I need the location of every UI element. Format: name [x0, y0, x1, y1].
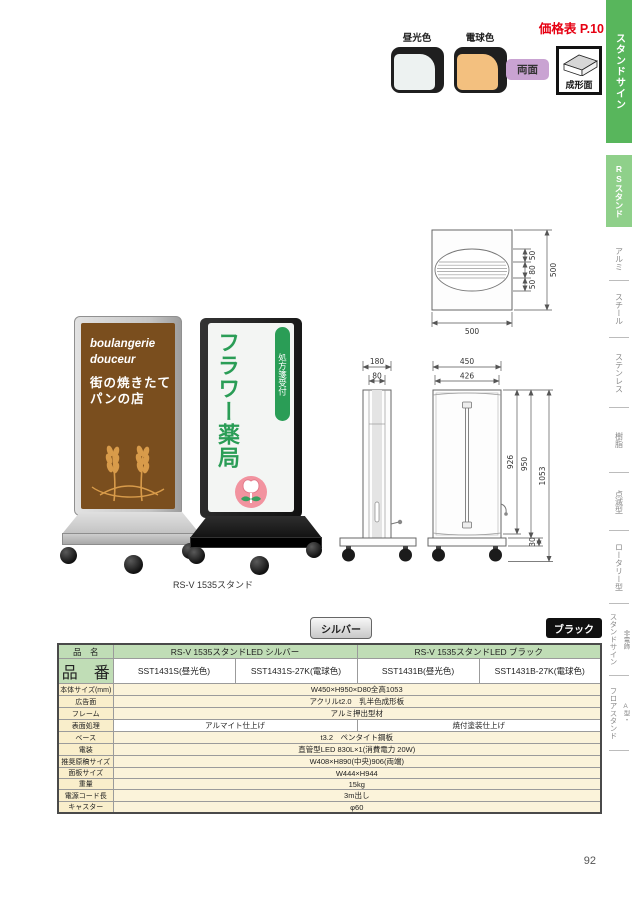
swatch-bulb-panel: [457, 54, 498, 90]
product-code: SST1431S-27K(電球色): [235, 659, 357, 684]
bakery-line1: boulangerie: [90, 338, 155, 350]
dim-30: 30: [528, 537, 537, 547]
table-row: 重量15kg: [58, 779, 601, 790]
bakery-line4: パンの店: [90, 392, 145, 406]
spec-row-label: 品 番: [58, 659, 113, 684]
table-row: キャスターφ60: [58, 802, 601, 814]
table-row: 電源コード長3m出し: [58, 790, 601, 802]
dim-500-width: 500: [465, 327, 480, 336]
caster-wheel: [124, 555, 143, 574]
molded-face-badge: 成形面: [556, 46, 602, 95]
product-name-black: RS-V 1535スタンドLED ブラック: [357, 644, 601, 659]
black-stand-base-front: [190, 537, 322, 548]
black-stand-frame: フラワー薬局 処方箋受付: [200, 318, 302, 518]
spec-table: 品 名RS-V 1535スタンドLED シルバーRS-V 1535スタンドLED…: [57, 643, 602, 814]
bakery-line2: douceur: [90, 354, 135, 366]
sidebar-item-rotary-label: ロータリー型: [614, 543, 625, 591]
sidebar-tab-stand-sign[interactable]: スタンドサイン: [606, 0, 632, 143]
caster-wheel: [188, 547, 205, 564]
caster-wheel: [306, 542, 322, 558]
dim-450: 450: [460, 357, 475, 366]
spec-row-label: 推奨原稿サイズ: [58, 756, 113, 768]
table-row-code: 品 番SST1431S(昼光色)SST1431S-27K(電球色)SST1431…: [58, 659, 601, 684]
sidebar-separator: [609, 750, 629, 751]
sidebar-tab-rs-stand-label: RSスタンド: [613, 164, 625, 218]
swatch-bulb: 電球色: [452, 30, 508, 93]
dim-500-height: 500: [549, 263, 558, 278]
product-code: SST1431S(昼光色): [113, 659, 235, 684]
dim-80-side: 80: [372, 372, 382, 381]
double-side-badge: 両面: [506, 59, 549, 80]
swatch-daylight-panel: [394, 54, 435, 90]
tulip-logo-icon: [233, 474, 269, 510]
spec-value: 直管型LED 830L×1(消費電力 20W): [113, 744, 601, 756]
table-row: 推奨原稿サイズW408×H890(中央)906(両端): [58, 756, 601, 768]
wheat-illustration-icon: [86, 443, 170, 505]
sidebar-item-non-illuminated-stand-sign[interactable]: スタンドサイン 非電飾: [606, 604, 632, 675]
spec-row-label: 品 名: [58, 644, 113, 659]
spec-row-label: フレーム: [58, 708, 113, 720]
drawing-elevations: 180 80 450 426: [333, 356, 573, 571]
table-row: 面板サイズW444×H944: [58, 768, 601, 779]
spec-value: アクリルt2.0 乳半色成形板: [113, 696, 601, 708]
caster-wheel: [250, 556, 269, 575]
spec-row-label: 本体サイズ(mm): [58, 684, 113, 696]
black-color-badge: ブラック: [546, 618, 602, 638]
spec-value: 15kg: [113, 779, 601, 790]
table-row: フレームアルミ押出型材: [58, 708, 601, 720]
page-number: 92: [566, 855, 596, 867]
sidebar-tab-rs-stand[interactable]: RSスタンド: [606, 155, 632, 227]
sidebar-item-stainless[interactable]: ステンレス: [606, 338, 632, 407]
spec-row-label: キャスター: [58, 802, 113, 814]
product-code: SST1431B-27K(電球色): [479, 659, 601, 684]
dim-80: 80: [528, 265, 537, 275]
swatch-bulb-image: [454, 47, 507, 93]
table-row: 表面処理アルマイト仕上げ焼付塗装仕上げ: [58, 720, 601, 732]
silver-stand-base-front: [62, 533, 200, 545]
black-stand-base: [190, 516, 322, 538]
spec-value: φ60: [113, 802, 601, 814]
spec-value: W450×H950×D80全高1053: [113, 684, 601, 696]
spec-row-label: 電源コード長: [58, 790, 113, 802]
spec-row-label: 電装: [58, 744, 113, 756]
sidebar-item-stainless-label: ステンレス: [614, 353, 625, 393]
spec-value: W408×H890(中央)906(両端): [113, 756, 601, 768]
sidebar-item-resin-label: 樹脂: [614, 432, 625, 448]
dim-180: 180: [370, 357, 385, 366]
silver-color-badge: シルバー: [310, 617, 372, 639]
table-row: 電装直管型LED 830L×1(消費電力 20W): [58, 744, 601, 756]
spec-row-label: 広告面: [58, 696, 113, 708]
sidebar-item-blinking-label: 点滅型: [614, 490, 625, 514]
spec-value: アルマイト仕上げ: [113, 720, 357, 732]
table-row: ベースt3.2 ペンタイト鋼板: [58, 732, 601, 744]
spec-value: アルミ押出型材: [113, 708, 601, 720]
pharmacy-ribbon-text: 処方箋受付: [277, 353, 289, 396]
sidebar-item-steel-label: スチール: [614, 293, 625, 325]
sidebar-item-non-illuminated-prefix: 非電飾: [620, 630, 630, 650]
sidebar-item-non-illuminated-label: スタンドサイン: [608, 613, 619, 666]
pharmacy-ribbon: 処方箋受付: [275, 327, 290, 421]
swatch-daylight: 昼光色: [389, 30, 445, 93]
spec-row-label: ベース: [58, 732, 113, 744]
sidebar-item-resin[interactable]: 樹脂: [606, 408, 632, 472]
product-name-silver: RS-V 1535スタンドLED シルバー: [113, 644, 357, 659]
spec-row-label: 表面処理: [58, 720, 113, 732]
swatch-daylight-label: 昼光色: [389, 30, 445, 44]
dim-950: 950: [520, 457, 529, 472]
caster-wheel: [60, 547, 77, 564]
sidebar-item-rotary[interactable]: ロータリー型: [606, 531, 632, 603]
table-row: 本体サイズ(mm)W450×H950×D80全高1053: [58, 684, 601, 696]
swatch-bulb-label: 電球色: [452, 30, 508, 44]
dim-50-bottom: 50: [528, 280, 537, 290]
sidebar-item-a-type-prefix: A型・: [620, 703, 630, 723]
spec-row-label: 面板サイズ: [58, 768, 113, 779]
molded-corner-icon: [560, 50, 600, 76]
dim-426: 426: [460, 372, 475, 381]
dim-50-top: 50: [528, 251, 537, 261]
dim-1053: 1053: [538, 466, 547, 485]
sidebar-item-blinking[interactable]: 点滅型: [606, 473, 632, 530]
table-row-name: 品 名RS-V 1535スタンドLED シルバーRS-V 1535スタンドLED…: [58, 644, 601, 659]
sidebar-item-aluminum[interactable]: アルミ: [606, 237, 632, 280]
product-photo-black-stand: フラワー薬局 処方箋受付: [194, 318, 318, 576]
silver-stand-base: [62, 512, 200, 534]
pharmacy-sign-face: フラワー薬局 処方箋受付: [208, 323, 294, 512]
price-list-link[interactable]: 価格表 P.10: [500, 18, 604, 37]
bakery-line3: 街の焼きたて: [90, 376, 171, 390]
spec-value: t3.2 ペンタイト鋼板: [113, 732, 601, 744]
pharmacy-sign-text: フラワー薬局: [211, 331, 243, 496]
sidebar-item-aluminum-label: アルミ: [614, 247, 625, 271]
sidebar-item-a-type-floor-stand[interactable]: フロアスタンド A型・: [606, 676, 632, 750]
spec-value: 3m出し: [113, 790, 601, 802]
product-caption: RS-V 1535スタンド: [146, 578, 280, 591]
spec-table-body: 品 名RS-V 1535スタンドLED シルバーRS-V 1535スタンドLED…: [58, 644, 601, 813]
dim-926: 926: [506, 455, 515, 470]
spec-value: 焼付塗装仕上げ: [357, 720, 601, 732]
product-photo-silver-stand: boulangerie douceur 街の焼きたて パンの店: [60, 316, 208, 578]
swatch-daylight-image: [391, 47, 444, 93]
table-row: 広告面アクリルt2.0 乳半色成形板: [58, 696, 601, 708]
spec-row-label: 重量: [58, 779, 113, 790]
product-code: SST1431B(昼光色): [357, 659, 479, 684]
sidebar-tab-stand-sign-label: スタンドサイン: [612, 33, 627, 110]
sidebar-item-floor-stand-label: フロアスタンド: [608, 687, 619, 740]
molded-face-label: 成形面: [559, 78, 599, 91]
catalog-page: 価格表 P.10 昼光色 電球色 両面 成形面 スタンドサイン RSスタンド ア…: [0, 0, 636, 900]
bakery-sign-face: boulangerie douceur 街の焼きたて パンの店: [81, 323, 175, 509]
spec-value: W444×H944: [113, 768, 601, 779]
silver-stand-frame: boulangerie douceur 街の焼きたて パンの店: [74, 316, 182, 516]
sidebar-item-steel[interactable]: スチール: [606, 281, 632, 337]
drawing-top-view: 50 80 50 500 500: [425, 226, 575, 338]
